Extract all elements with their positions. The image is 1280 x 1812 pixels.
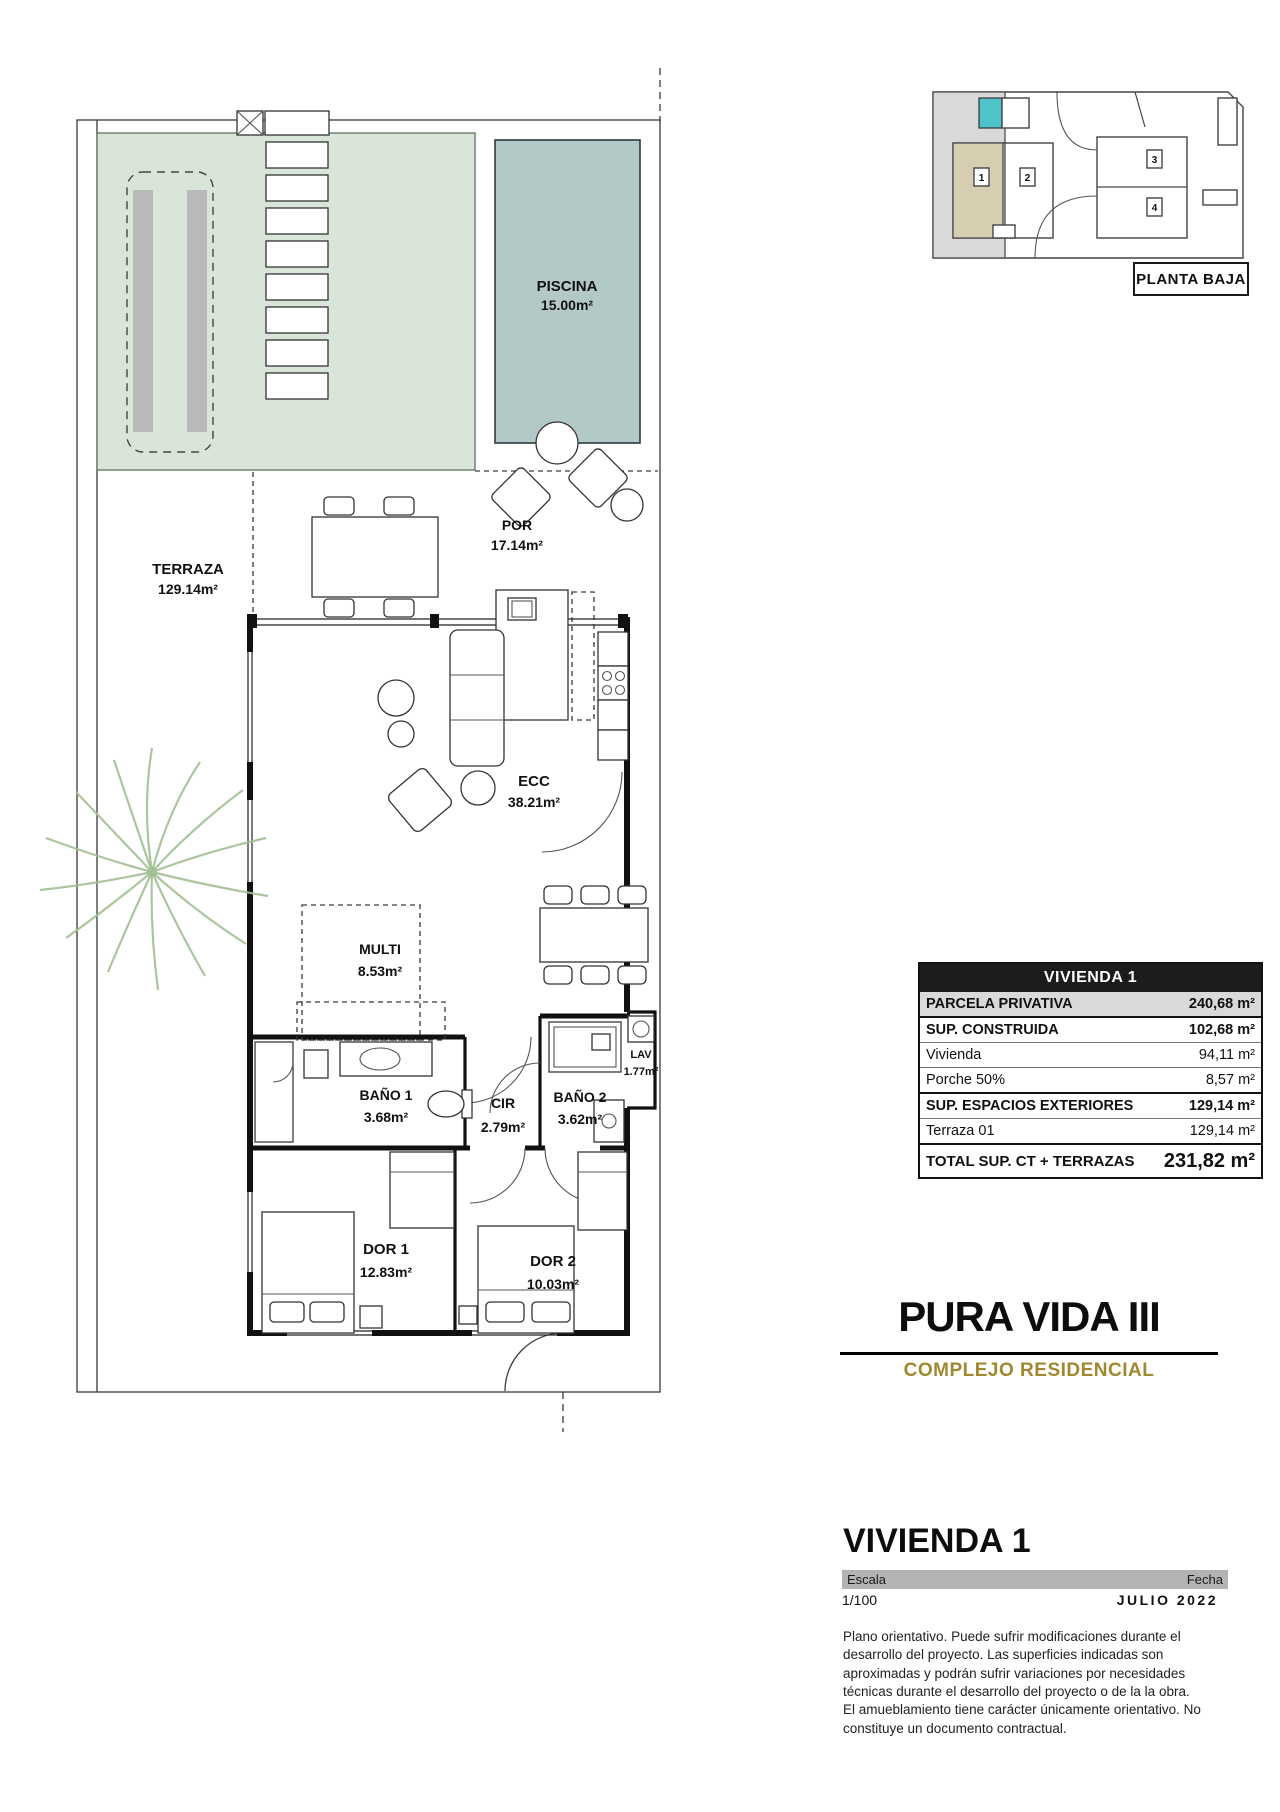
sheet-title: VIVIENDA 1 (843, 1522, 1031, 1561)
room-label-dor1: DOR 1 (363, 1241, 409, 1258)
row-label: Porche 50% (926, 1072, 1005, 1088)
armchair (386, 766, 454, 834)
unit-1-highlight (953, 143, 1003, 238)
room-area-terraza: 129.14m² (158, 581, 218, 597)
room-area-multi: 8.53m² (358, 963, 403, 979)
row-label: TOTAL SUP. CT + TERRAZAS (926, 1153, 1135, 1170)
planta-baja-label: PLANTA BAJA (1133, 262, 1249, 296)
table-header: VIVIENDA 1 (920, 964, 1261, 992)
row-label: SUP. ESPACIOS EXTERIORES (926, 1098, 1133, 1114)
kitchen (496, 590, 628, 760)
room-label-terraza: TERRAZA (152, 561, 224, 578)
floor-plan-drawing: PISCINA 15.00m² TERRAZA 129.14m² POR 17.… (0, 0, 720, 1460)
area-summary-table: VIVIENDA 1 PARCELA PRIVATIVA 240,68 m² S… (918, 962, 1263, 1179)
porch-table (312, 517, 438, 597)
table-row-total: TOTAL SUP. CT + TERRAZAS 231,82 m² (920, 1143, 1261, 1177)
round-table (536, 422, 578, 464)
disclaimer: Plano orientativo. Puede sufrir modifica… (843, 1628, 1221, 1738)
project-title: PURA VIDA III (830, 1293, 1228, 1341)
row-label: SUP. CONSTRUIDA (926, 1022, 1059, 1038)
shower (255, 1042, 293, 1142)
row-value: 240,68 m² (1189, 996, 1255, 1012)
pool: PISCINA 15.00m² (495, 140, 640, 443)
stove (598, 666, 628, 700)
room-label-bano1: BAÑO 1 (360, 1086, 413, 1103)
row-value: 8,57 m² (1206, 1072, 1255, 1088)
living-furniture (378, 630, 504, 834)
row-value: 129,14 m² (1189, 1098, 1255, 1114)
room-area-bano2: 3.62m² (558, 1111, 603, 1127)
meta-values: 1/100 JULIO 2022 (842, 1592, 1218, 1608)
table-row: PARCELA PRIVATIVA 240,68 m² (920, 992, 1261, 1016)
row-label: PARCELA PRIVATIVA (926, 996, 1073, 1012)
disclaimer-paragraph-2: El amueblamiento tiene carácter únicamen… (843, 1701, 1221, 1738)
dining-table (540, 886, 648, 984)
room-label-bano2: BAÑO 2 (554, 1088, 607, 1105)
sofa (450, 630, 504, 766)
room-area-ecc: 38.21m² (508, 794, 560, 810)
toilet (304, 1050, 328, 1078)
wardrobe (390, 1152, 454, 1228)
room-area-por: 17.14m² (491, 537, 543, 553)
unit-marker-1: 1 (979, 173, 985, 184)
room-area-lav: 1.77m² (624, 1066, 659, 1078)
unit-marker-2: 2 (1025, 173, 1031, 184)
room-area-bano1: 3.68m² (364, 1109, 409, 1125)
room-area-cir: 2.79m² (481, 1119, 526, 1135)
ottoman (461, 771, 495, 805)
nightstand (360, 1306, 382, 1328)
nightstand (459, 1306, 477, 1324)
washing-machine (628, 1016, 654, 1042)
room-area-dor1: 12.83m² (360, 1264, 412, 1280)
project-subtitle: COMPLEJO RESIDENCIAL (840, 1360, 1218, 1382)
meta-bar: Escala Fecha (842, 1570, 1228, 1589)
bedroom-1 (262, 1152, 454, 1333)
site-pool (979, 98, 1002, 128)
palm-plant (40, 748, 268, 990)
row-value: 94,11 m² (1199, 1047, 1255, 1063)
table-row: SUP. ESPACIOS EXTERIORES 129,14 m² (920, 1092, 1261, 1118)
laundry (628, 1016, 654, 1042)
row-label: Terraza 01 (926, 1123, 995, 1139)
room-area-piscina: 15.00m² (541, 297, 593, 313)
room-label-ecc: ECC (518, 773, 550, 790)
row-label: Vivienda (926, 1047, 981, 1063)
row-value: 102,68 m² (1189, 1022, 1255, 1038)
table-row: Porche 50% 8,57 m² (920, 1067, 1261, 1092)
toilet (428, 1091, 464, 1117)
table-row: SUP. CONSTRUIDA 102,68 m² (920, 1016, 1261, 1042)
room-label-piscina: PISCINA (537, 278, 598, 295)
site-key-map: 1 2 3 4 (925, 78, 1245, 263)
wardrobe (578, 1152, 627, 1230)
scale-label: Escala (847, 1572, 886, 1587)
coffee-table (378, 680, 414, 716)
room-label-por: POR (502, 517, 532, 533)
scale-value: 1/100 (842, 1592, 877, 1608)
vanity (340, 1042, 432, 1076)
garden-zone (97, 111, 475, 470)
room-area-dor2: 10.03m² (527, 1276, 579, 1292)
disclaimer-paragraph-1: Plano orientativo. Puede sufrir modifica… (843, 1628, 1221, 1701)
table-row: Terraza 01 129,14 m² (920, 1118, 1261, 1143)
room-label-dor2: DOR 2 (530, 1253, 576, 1270)
title-rule (840, 1352, 1218, 1355)
date-label: Fecha (1187, 1572, 1223, 1587)
table-row: Vivienda 94,11 m² (920, 1042, 1261, 1067)
round-table (611, 489, 643, 521)
unit-marker-4: 4 (1152, 203, 1158, 214)
unit-marker-3: 3 (1152, 155, 1158, 166)
bedroom-2 (459, 1152, 627, 1333)
row-value: 231,82 m² (1164, 1150, 1255, 1173)
row-value: 129,14 m² (1190, 1123, 1255, 1139)
room-label-cir: CIR (491, 1095, 515, 1111)
date-value: JULIO 2022 (1117, 1592, 1218, 1608)
room-label-multi: MULTI (359, 941, 401, 957)
room-label-lav: LAV (630, 1049, 652, 1061)
